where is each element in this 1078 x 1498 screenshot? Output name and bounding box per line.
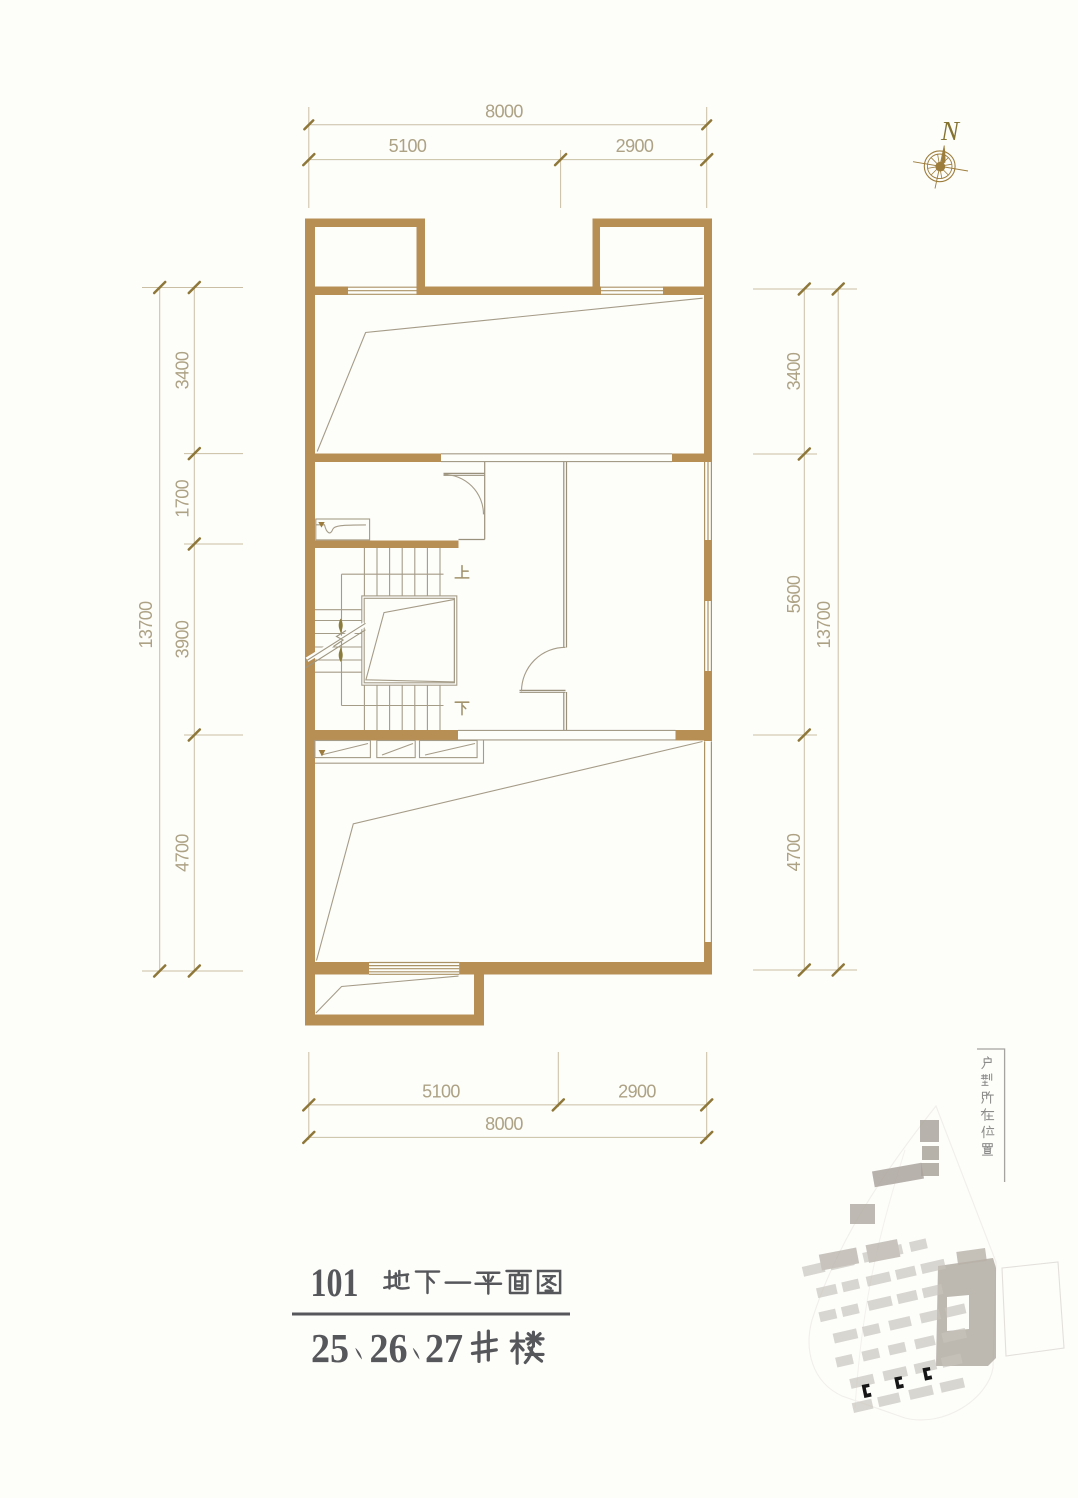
svg-text:27: 27 <box>425 1326 463 1372</box>
svg-text:5100: 5100 <box>389 136 427 156</box>
svg-text:5100: 5100 <box>422 1081 460 1101</box>
svg-text:8000: 8000 <box>485 1114 523 1134</box>
svg-text:N: N <box>940 116 961 146</box>
svg-text:8000: 8000 <box>485 101 523 121</box>
svg-text:26: 26 <box>370 1326 408 1372</box>
svg-text:5600: 5600 <box>784 575 804 613</box>
svg-text:4700: 4700 <box>784 833 804 871</box>
svg-text:2900: 2900 <box>618 1081 656 1101</box>
svg-text:4700: 4700 <box>173 834 193 872</box>
svg-text:13700: 13700 <box>814 601 834 649</box>
svg-text:1700: 1700 <box>173 479 193 517</box>
svg-text:2900: 2900 <box>616 136 654 156</box>
svg-text:3900: 3900 <box>173 620 193 658</box>
svg-text:25: 25 <box>311 1326 349 1372</box>
svg-text:101: 101 <box>311 1261 359 1305</box>
svg-text:13700: 13700 <box>136 601 156 649</box>
svg-text:3400: 3400 <box>784 352 804 390</box>
svg-text:3400: 3400 <box>173 351 193 389</box>
